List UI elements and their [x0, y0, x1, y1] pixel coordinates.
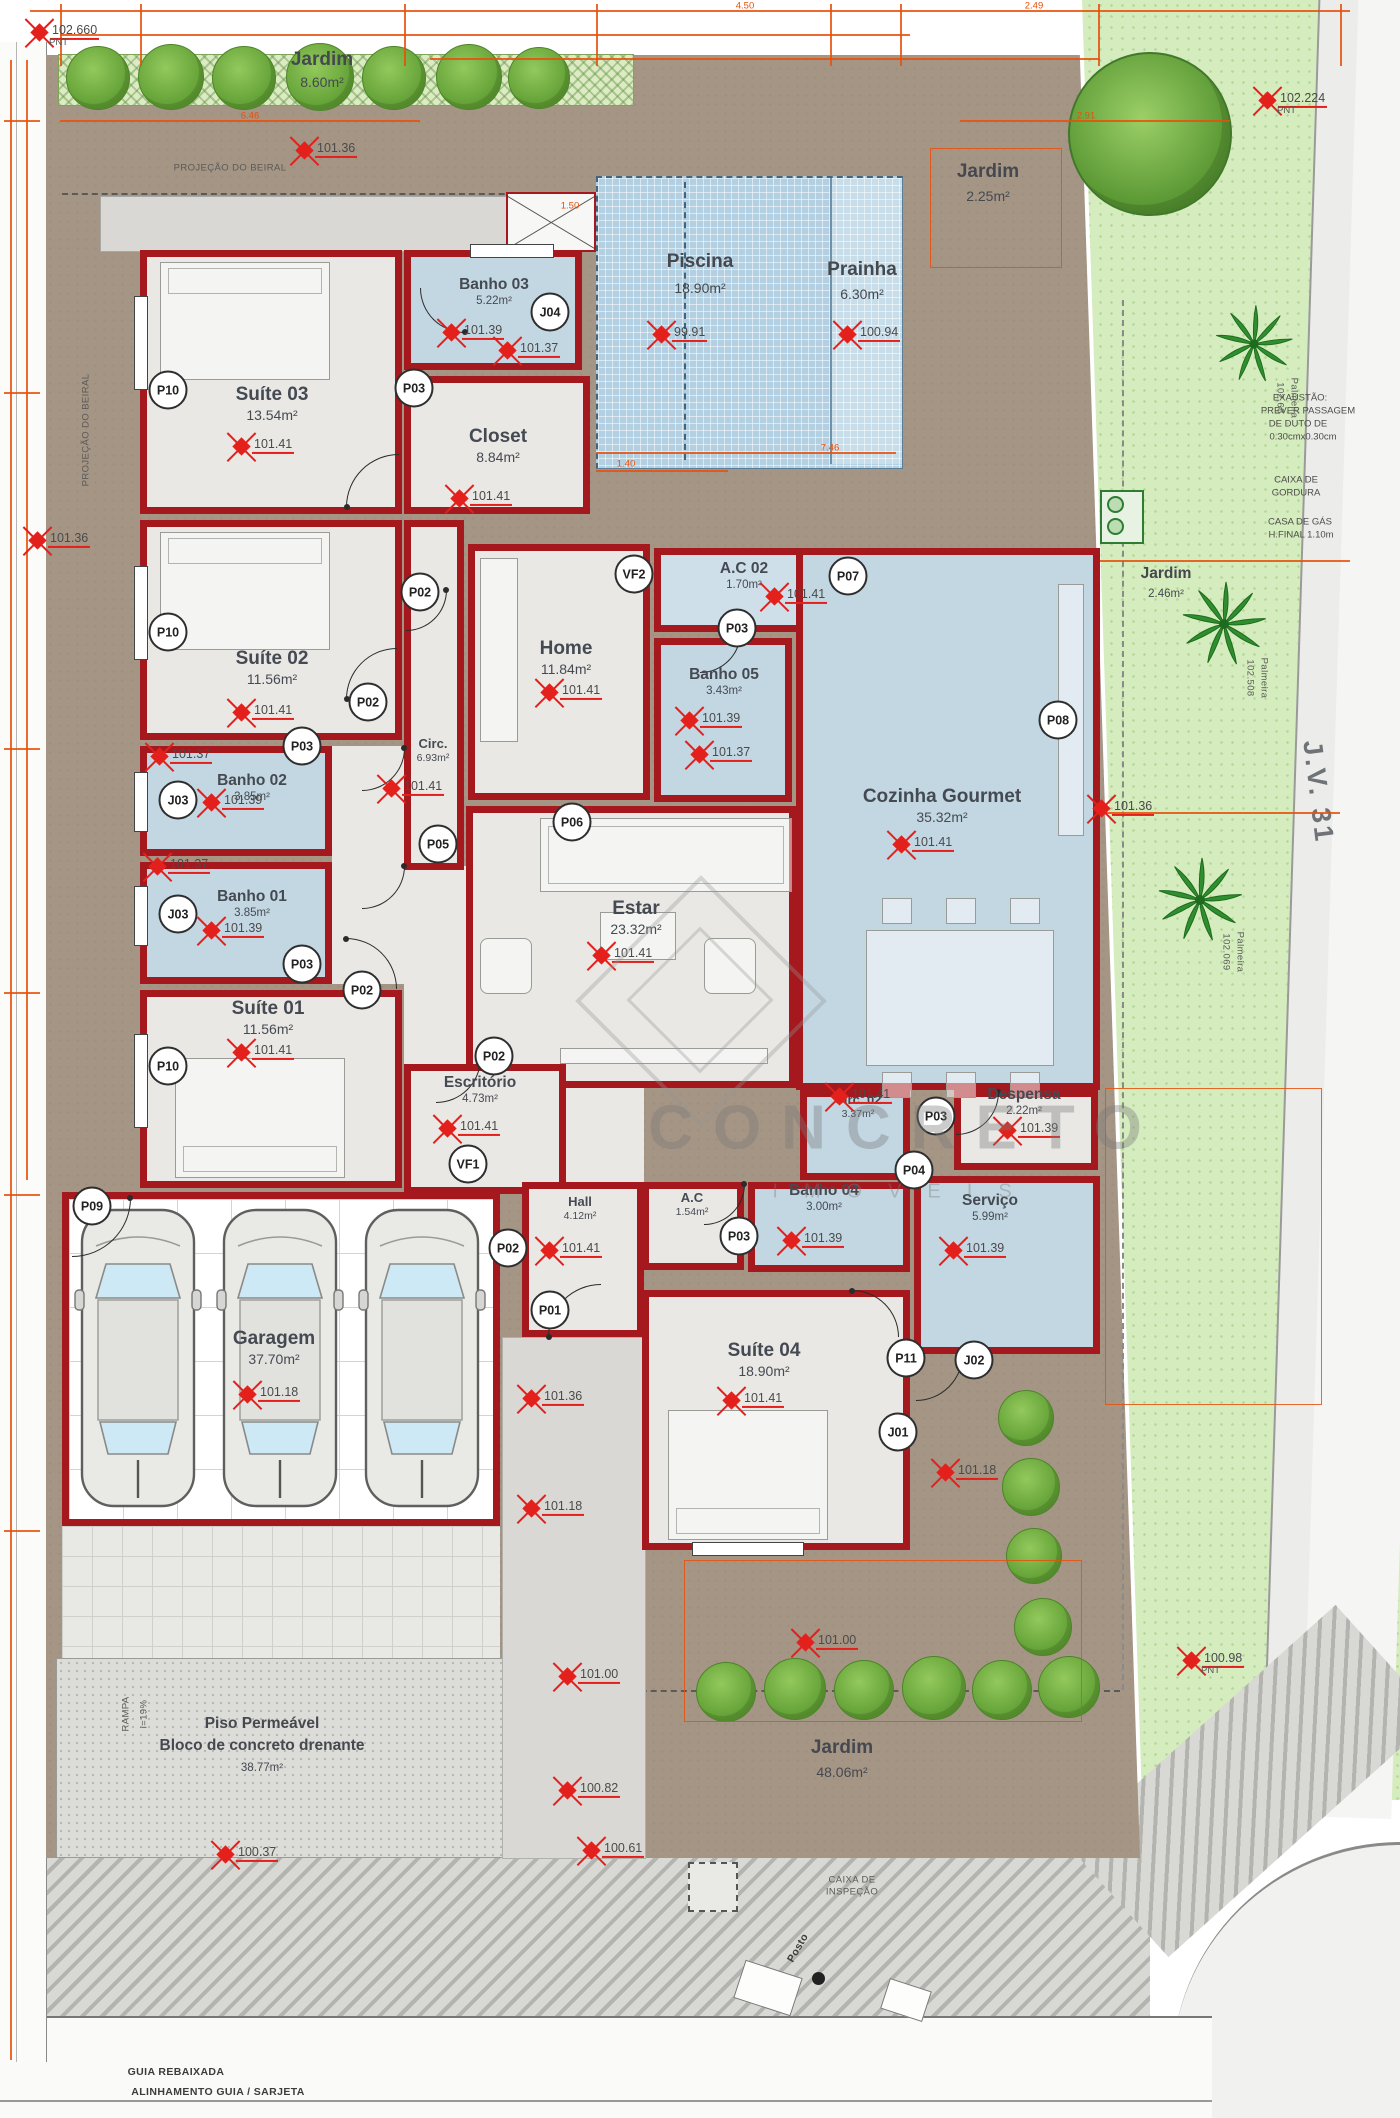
elevation-diamond-icon [782, 1231, 800, 1249]
elevation-marker: 101.39 [205, 794, 264, 810]
room-name: Despensa [987, 1086, 1060, 1104]
dim-box [1105, 1088, 1322, 1405]
elevation-diamond-icon [30, 23, 48, 41]
elevation-diamond-icon [438, 1119, 456, 1137]
elevation-value: 101.41 [252, 438, 294, 454]
elevation-marker: 101.39 [785, 1232, 844, 1248]
annotation-text: RAMPA [121, 1696, 132, 1731]
elevation-marker: 101.41 [543, 1242, 602, 1258]
bed-pillows [168, 538, 322, 564]
elevation-diamond-icon [216, 1845, 234, 1863]
elevation-diamond-icon [558, 1781, 576, 1799]
left-street [0, 42, 47, 2062]
bush [436, 44, 502, 110]
room-label: Suíte 0211.56m² [236, 648, 309, 687]
elevation-value: 101.36 [315, 142, 357, 158]
room-area: 5.99m² [962, 1211, 1018, 1223]
bush [998, 1390, 1054, 1446]
elevation-marker: 99.91 [655, 326, 707, 342]
room-area: 35.32m² [863, 809, 1021, 825]
tag-p02: P02 [349, 683, 388, 722]
elevation-value: 101.39 [802, 1232, 844, 1248]
street-post [812, 1972, 825, 1985]
dim-line [596, 470, 728, 472]
window [134, 566, 148, 660]
elevation-value: 101.18 [258, 1386, 300, 1402]
room-label: Despensa2.22m² [987, 1086, 1060, 1117]
dim-line [1340, 4, 1342, 66]
elevation-sub: PNT [49, 37, 68, 48]
dim-line [4, 748, 40, 750]
tag-p10: P10 [149, 1047, 188, 1086]
window [134, 296, 148, 390]
grease-trap-icon [1100, 490, 1144, 544]
elevation-diamond-icon [295, 141, 313, 159]
annotation-text: 102.68 [1275, 382, 1286, 413]
dimension-label: 1.50 [561, 201, 580, 212]
tag-p09: P09 [73, 1187, 112, 1226]
elevation-value: 101.36 [48, 532, 90, 548]
elevation-marker: 101.41 [768, 588, 827, 604]
room-area: 37.70m² [233, 1351, 315, 1367]
annotation-text: 38.77m² [241, 1762, 283, 1774]
elevation-diamond-icon [652, 325, 670, 343]
tag-p06: P06 [553, 803, 592, 842]
elevation-diamond-icon [522, 1389, 540, 1407]
elevation-diamond-icon [238, 1385, 256, 1403]
elevation-value: 100.37 [236, 1846, 278, 1862]
elevation-diamond-icon [450, 489, 468, 507]
annotation-text: CAIXA DE [1274, 475, 1318, 486]
dim-line [900, 4, 902, 66]
tag-p05: P05 [419, 825, 458, 864]
dim-line [4, 1530, 40, 1532]
elevation-value: 101.39 [222, 922, 264, 938]
elevation-diamond-icon [202, 921, 220, 939]
elevation-marker: 101.36 [525, 1390, 584, 1406]
elevation-diamond-icon [680, 711, 698, 729]
dimension-label: 1.40 [617, 459, 636, 470]
elevation-value: 101.37 [170, 748, 212, 764]
tag-p02: P02 [401, 573, 440, 612]
room-label: Home11.84m² [540, 638, 593, 677]
elevation-diamond-icon [150, 747, 168, 765]
elevation-marker: 100.82 [561, 1782, 620, 1798]
room-area: 11.56m² [236, 671, 309, 687]
elevation-value: 101.00 [578, 1668, 620, 1684]
room-name: Home [540, 638, 593, 660]
room-area: 13.54m² [236, 407, 309, 423]
elevation-marker: 100.61 [585, 1842, 644, 1858]
elevation-diamond-icon [498, 341, 516, 359]
elevation-value: 101.39 [964, 1242, 1006, 1258]
tag-j01: J01 [879, 1413, 918, 1452]
room-name: Suíte 02 [236, 648, 309, 670]
annotation-text: INSPEÇÃO [826, 1887, 878, 1898]
elevation-value: 101.18 [542, 1500, 584, 1516]
room-name: Garagem [233, 1328, 315, 1350]
dim-line [1098, 4, 1100, 66]
elevation-value: 101.41 [850, 1088, 892, 1104]
room-area: 3.37m² [835, 1108, 882, 1120]
elevation-value: 101.41 [785, 588, 827, 604]
tag-p03: P03 [283, 945, 322, 984]
tag-j03: J03 [159, 895, 198, 934]
elevation-value: 101.41 [252, 704, 294, 720]
large-tree [1068, 52, 1232, 216]
dimension-label: 4.50 [736, 1, 755, 12]
room-area: 23.32m² [610, 921, 661, 937]
annotation-text: GORDURA [1272, 488, 1321, 499]
dining-table [866, 930, 1054, 1066]
elevation-marker: 101.41 [543, 684, 602, 700]
elevation-value: 101.36 [1112, 800, 1154, 816]
bush [138, 44, 204, 110]
room-name: Serviço [962, 1192, 1018, 1210]
annotation-text: Prainha [827, 259, 897, 281]
chair [946, 898, 976, 924]
elevation-diamond-icon [592, 946, 610, 964]
dim-line [4, 1194, 40, 1196]
room-label: Suíte 0418.90m² [728, 1340, 801, 1379]
elevation-diamond-icon [765, 587, 783, 605]
elevation-value: 100.61 [602, 1842, 644, 1858]
elevation-marker: 102.224PNT [1261, 92, 1327, 108]
annotation-text: 48.06m² [816, 1764, 867, 1780]
elevation-diamond-icon [892, 835, 910, 853]
room-name: A.C [676, 1190, 709, 1205]
dim-line [1100, 560, 1350, 562]
elevation-value: 101.41 [612, 947, 654, 963]
dim-line [830, 4, 832, 66]
dim-line [4, 392, 40, 394]
elevation-value: 100.94 [858, 326, 900, 342]
elevation-marker: 101.18 [241, 1386, 300, 1402]
room-area: 3.85m² [217, 907, 287, 919]
elevation-value: 101.36 [542, 1390, 584, 1406]
tag-p10: P10 [149, 613, 188, 652]
dim-box [684, 1560, 1082, 1722]
annotation-text: H.FINAL 1.10m [1268, 530, 1333, 541]
annotation-text: 18.90m² [674, 280, 725, 296]
dim-line [10, 60, 12, 2060]
elevation-diamond-icon [690, 745, 708, 763]
room-label: Hall4.12m² [564, 1194, 597, 1222]
room-area: 3.00m² [789, 1201, 859, 1213]
elevation-value: 101.39 [462, 324, 504, 340]
room-name: Hall [564, 1194, 597, 1209]
dimension-label: 2.49 [1025, 1, 1044, 12]
elevation-marker: 101.41 [385, 780, 444, 796]
elevation-sub: PNT [1201, 1665, 1220, 1676]
tag-p03: P03 [917, 1097, 956, 1136]
tag-p03: P03 [720, 1217, 759, 1256]
annotation-text: Palmeira [1235, 932, 1246, 973]
bottom-sidewalk [0, 1858, 1150, 2016]
annotation-text: 0.30cmx0.30cm [1269, 432, 1336, 443]
elevation-marker: 101.18 [939, 1464, 998, 1480]
elevation-marker: 100.94 [841, 326, 900, 342]
elevation-marker: 101.41 [453, 490, 512, 506]
room-label: Banho 043.00m² [789, 1182, 859, 1213]
room-name: Banho 05 [689, 666, 759, 684]
elevation-diamond-icon [232, 703, 250, 721]
elevation-value: 101.41 [560, 1242, 602, 1258]
tag-p03: P03 [395, 369, 434, 408]
room-label: Escritório4.73m² [444, 1074, 516, 1105]
elevation-value: 101.39 [222, 794, 264, 810]
elevation-marker: 101.41 [833, 1088, 892, 1104]
tag-vf2: VF2 [615, 555, 654, 594]
elevation-diamond-icon [998, 1121, 1016, 1139]
room-name: A.C 02 [720, 560, 768, 578]
annotation-text: 2.46m² [1148, 588, 1184, 600]
elevation-diamond-icon [558, 1667, 576, 1685]
room-name: Escritório [444, 1074, 516, 1092]
room-area: 1.54m² [676, 1206, 709, 1218]
room-label: Closet8.84m² [469, 426, 527, 465]
elevation-marker: 101.39 [947, 1242, 1006, 1258]
elevation-diamond-icon [722, 1391, 740, 1409]
elevation-marker: 101.18 [525, 1500, 584, 1516]
room-area: 2.22m² [987, 1105, 1060, 1117]
elevation-diamond-icon [796, 1633, 814, 1651]
bed-pillows [183, 1146, 337, 1172]
room-area: 3.43m² [689, 685, 759, 697]
prainha-zone [830, 178, 902, 464]
room-name: Suíte 04 [728, 1340, 801, 1362]
window [692, 1542, 804, 1556]
room-area: 4.73m² [444, 1093, 516, 1105]
dimension-label: 7.46 [821, 443, 840, 454]
elevation-diamond-icon [1092, 799, 1110, 817]
room-label: Suíte 0111.56m² [232, 998, 305, 1037]
elevation-value: 101.41 [470, 490, 512, 506]
elevation-value: 101.00 [816, 1634, 858, 1650]
annotation-text: Bloco de concreto drenante [160, 1737, 365, 1755]
armchair [480, 938, 532, 994]
elevation-diamond-icon [1182, 1651, 1200, 1669]
tag-p04: P04 [895, 1151, 934, 1190]
permeable-floor [56, 1658, 504, 1858]
tag-p01: P01 [531, 1291, 570, 1330]
elevation-marker: 101.37 [153, 748, 212, 764]
annotation-text: Jardim [291, 49, 353, 71]
annotation-text: Jardim [1141, 565, 1192, 583]
tag-p07: P07 [829, 557, 868, 596]
room-name: Banho 01 [217, 888, 287, 906]
annotation-text: 8.60m² [300, 74, 344, 90]
room-label: Banho 053.43m² [689, 666, 759, 697]
elevation-diamond-icon [830, 1087, 848, 1105]
home-shelf [480, 558, 518, 742]
room-label: Estar23.32m² [610, 898, 661, 937]
annotation-text: Piscina [667, 251, 734, 273]
room-name: Banho 02 [217, 772, 287, 790]
annotation-text: CASA DE GÁS [1268, 517, 1332, 528]
tag-p11: P11 [887, 1339, 926, 1378]
annotation-text: Palmeira [1259, 658, 1270, 699]
dim-box [930, 148, 1062, 268]
driveway [62, 1526, 500, 1658]
room-label: Circ.6.93m² [417, 736, 450, 764]
dimension-label: 6.46 [241, 111, 260, 122]
room-area: 18.90m² [728, 1363, 801, 1379]
elevation-diamond-icon [202, 793, 220, 811]
tag-j02: J02 [955, 1341, 994, 1380]
bush [1002, 1458, 1060, 1516]
room-label: Cozinha Gourmet35.32m² [863, 786, 1021, 825]
tag-vf1: VF1 [449, 1145, 488, 1184]
elevation-marker: 101.37 [151, 858, 210, 874]
dim-line [430, 58, 1100, 60]
dim-line [596, 4, 598, 66]
room-area: 11.56m² [232, 1021, 305, 1037]
corridor-patch [404, 866, 466, 1068]
pool-inner-line [684, 182, 686, 460]
annotation-text: DE DUTO DE [1269, 419, 1327, 430]
room-name: Estar [610, 898, 661, 920]
annotation-text: Jardim [811, 1737, 873, 1759]
elevation-diamond-icon [540, 1241, 558, 1259]
room-area: 6.93m² [417, 752, 450, 764]
elevation-marker: 101.41 [725, 1392, 784, 1408]
annotation-text: PROJEÇÃO DO BEIRAL [174, 163, 287, 174]
elevation-value: 101.18 [956, 1464, 998, 1480]
room-label: A.C1.54m² [676, 1190, 709, 1218]
armchair [704, 938, 756, 994]
elevation-diamond-icon [540, 683, 558, 701]
elevation-marker: 101.41 [235, 704, 294, 720]
elevation-marker: 101.37 [693, 746, 752, 762]
room-name: Banho 03 [459, 276, 529, 294]
window [134, 772, 148, 832]
elevation-diamond-icon [944, 1241, 962, 1259]
annotation-text: 102.069 [1221, 933, 1232, 970]
room-name: Cozinha Gourmet [863, 786, 1021, 808]
elevation-marker: 101.36 [31, 532, 90, 548]
tag-p02: P02 [489, 1229, 528, 1268]
annotation-text: 6.30m² [840, 286, 884, 302]
room-name: Closet [469, 426, 527, 448]
elevation-value: 101.37 [710, 746, 752, 762]
window [134, 1034, 148, 1128]
elevation-value: 101.37 [518, 342, 560, 358]
bush [362, 46, 426, 110]
dim-line [4, 120, 40, 122]
room-name: Suíte 03 [236, 384, 309, 406]
palm-tree-icon [1208, 298, 1300, 390]
chair [1010, 898, 1040, 924]
tag-j03: J03 [159, 781, 198, 820]
annotation-text: Piso Permeável [205, 1715, 320, 1733]
elevation-diamond-icon [28, 531, 46, 549]
elevation-value: 100.82 [578, 1782, 620, 1798]
elevation-marker: 101.41 [235, 438, 294, 454]
elevation-sub: PNT [1277, 105, 1296, 116]
tv-console [560, 1048, 768, 1064]
elevation-value: 101.41 [458, 1120, 500, 1136]
annotation-text: GUIA REBAIXADA [128, 2066, 225, 2078]
elevation-value: 101.41 [402, 780, 444, 796]
elevation-marker: 101.41 [595, 947, 654, 963]
room-label: Serviço5.99m² [962, 1192, 1018, 1223]
elevation-value: 101.41 [252, 1044, 294, 1060]
bush [212, 46, 276, 110]
tag-p03: P03 [283, 727, 322, 766]
elevation-marker: 101.00 [799, 1634, 858, 1650]
elevation-marker: 101.00 [561, 1668, 620, 1684]
elevation-diamond-icon [232, 1043, 250, 1061]
skylight-xbox [506, 192, 596, 252]
dim-line [4, 992, 40, 994]
tag-p10: P10 [149, 371, 188, 410]
elevation-marker: 101.39 [683, 712, 742, 728]
annotation-text: Palmeira [1289, 378, 1300, 419]
elevation-marker: 101.41 [441, 1120, 500, 1136]
annotation-text: ALINHAMENTO GUIA / SARJETA [131, 2086, 305, 2098]
annotation-text: i=19% [139, 1700, 150, 1729]
elevation-value: 101.37 [168, 858, 210, 874]
window [134, 886, 148, 946]
chair [882, 898, 912, 924]
room-label: Suíte 0313.54m² [236, 384, 309, 423]
elevation-diamond-icon [936, 1463, 954, 1481]
dim-line [596, 452, 896, 454]
elevation-diamond-icon [582, 1841, 600, 1859]
annotation-text: CAIXA DE [828, 1875, 875, 1886]
room-label: A.C 021.70m² [720, 560, 768, 591]
elevation-marker: 100.37 [219, 1846, 278, 1862]
elevation-marker: 100.98PNT [1185, 1652, 1244, 1668]
room-area: 5.22m² [459, 295, 529, 307]
elevation-value: 101.41 [560, 684, 602, 700]
elevation-marker: 101.39 [1001, 1122, 1060, 1138]
room-name: Circ. [417, 736, 450, 751]
elevation-value: 101.41 [742, 1392, 784, 1408]
elevation-marker: 101.39 [205, 922, 264, 938]
tag-j04: J04 [531, 293, 570, 332]
elevation-marker: 101.36 [298, 142, 357, 158]
room-label: Banho 013.85m² [217, 888, 287, 919]
window [470, 244, 554, 258]
elevation-value: 101.39 [1018, 1122, 1060, 1138]
tag-p02: P02 [475, 1037, 514, 1076]
elevation-value: 101.41 [912, 836, 954, 852]
elevation-marker: 101.41 [895, 836, 954, 852]
room-name: Banho 04 [789, 1182, 859, 1200]
room-label: Garagem37.70m² [233, 1328, 315, 1367]
elevation-marker: 102.660PNT [33, 24, 99, 40]
room-area: 11.84m² [540, 661, 593, 677]
floor-plan-canvas: CONCRETO IMÓVEIS Suíte 0313.54m²Banho 03… [0, 0, 1400, 2118]
dim-line [30, 10, 1350, 12]
bush [66, 46, 130, 110]
elevation-marker: 101.41 [235, 1044, 294, 1060]
elevation-diamond-icon [1258, 91, 1276, 109]
elevation-value: 101.39 [700, 712, 742, 728]
bed-pillows [168, 268, 322, 294]
annotation-text: PROJEÇÃO DO BEIRAL [81, 374, 92, 487]
elevation-diamond-icon [838, 325, 856, 343]
dim-line [26, 60, 28, 1180]
dim-line [404, 4, 406, 66]
annotation-text: 102.508 [1245, 659, 1256, 696]
elevation-marker: 101.36 [1095, 800, 1154, 816]
elevation-diamond-icon [232, 437, 250, 455]
tag-p03: P03 [718, 609, 757, 648]
elevation-diamond-icon [148, 857, 166, 875]
